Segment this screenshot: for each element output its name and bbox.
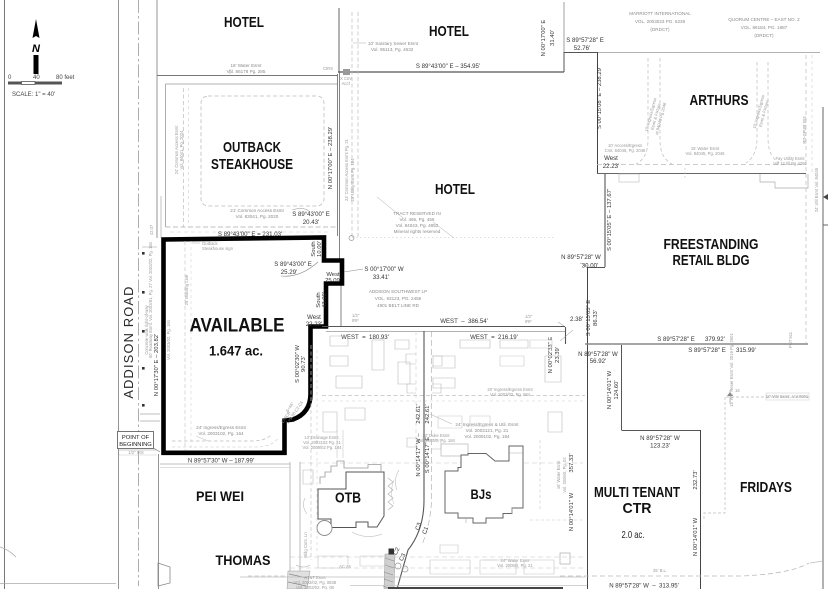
svg-text:S 89°57'28" E 379.92': S 89°57'28" E 379.92' bbox=[657, 336, 725, 343]
svg-text:PNT 911: PNT 911 bbox=[788, 331, 793, 348]
svg-text:56.92': 56.92' bbox=[590, 358, 606, 365]
svg-text:43.00': 43.00' bbox=[322, 292, 328, 308]
svg-text:Vol. 2003/0, Pg. 184: Vol. 2003/0, Pg. 184 bbox=[417, 438, 455, 443]
svg-text:(DRDCT): (DRDCT) bbox=[754, 33, 774, 38]
svg-text:MULTI TENANT: MULTI TENANT bbox=[594, 484, 680, 501]
svg-text:242.61': 242.61' bbox=[425, 404, 431, 423]
svg-text:2.0 ac.: 2.0 ac. bbox=[622, 529, 645, 541]
svg-text:N 00°14'17" W –: N 00°14'17" W – bbox=[416, 433, 422, 477]
svg-text:86.33': 86.33' bbox=[593, 310, 599, 326]
svg-text:25' Utility Esmt Pg. 184: 25' Utility Esmt Pg. 184 bbox=[350, 158, 355, 202]
svg-text:10' Sanitary Sewer Esmt: 10' Sanitary Sewer Esmt bbox=[368, 41, 419, 46]
svg-text:Vol. 2009/02 Pg. 184: Vol. 2009/02 Pg. 184 bbox=[303, 445, 343, 450]
svg-text:4901 BELT LINE RD: 4901 BELT LINE RD bbox=[377, 303, 420, 308]
svg-text:TRACT RESERVED IN: TRACT RESERVED IN bbox=[393, 211, 441, 216]
svg-text:80 feet: 80 feet bbox=[56, 75, 75, 81]
svg-text:BJs: BJs bbox=[471, 487, 492, 502]
svg-text:357.33': 357.33' bbox=[569, 453, 575, 472]
svg-text:FREESTANDING: FREESTANDING bbox=[664, 236, 759, 253]
svg-text:N 00°17'00" E – 238.29': N 00°17'00" E – 238.29' bbox=[328, 127, 334, 189]
svg-text:N 00°17'00" E: N 00°17'00" E bbox=[541, 20, 547, 57]
svg-text:Vol. 2003/02, Pg. 084: Vol. 2003/02, Pg. 084 bbox=[490, 392, 531, 397]
svg-text:(DRDCT): (DRDCT) bbox=[650, 27, 670, 32]
svg-text:N 00°17'30" E – 203.82': N 00°17'30" E – 203.82' bbox=[154, 334, 160, 396]
svg-text:QUORUM CENTRE – EAST NO. 2: QUORUM CENTRE – EAST NO. 2 bbox=[728, 17, 800, 22]
svg-text:16: 16 bbox=[735, 388, 740, 393]
svg-text:S 00°15'05" E – 137.67': S 00°15'05" E – 137.67' bbox=[607, 189, 613, 251]
svg-text:25.09': 25.09' bbox=[325, 278, 341, 284]
svg-text:Vol. 2003102, Pg. 164: Vol. 2003102, Pg. 164 bbox=[198, 431, 244, 436]
svg-text:Mineral rights reserved: Mineral rights reserved bbox=[394, 229, 441, 234]
svg-text:S 00°15'05" E: S 00°15'05" E bbox=[586, 300, 592, 336]
svg-text:HOTEL: HOTEL bbox=[224, 14, 264, 31]
svg-text:40: 40 bbox=[33, 75, 40, 81]
svg-text:Vol. 2009/0, Pg. 21: Vol. 2009/0, Pg. 21 bbox=[497, 563, 533, 568]
svg-text:N 00°14'01" W: N 00°14'01" W bbox=[569, 492, 575, 531]
svg-text:31.40': 31.40' bbox=[550, 30, 556, 46]
svg-text:24' Common Access Esmt Pg. 21: 24' Common Access Esmt Pg. 21 bbox=[344, 138, 349, 201]
svg-text:CIRS: CIRS bbox=[323, 66, 333, 71]
svg-text:52.76': 52.76' bbox=[574, 45, 590, 52]
svg-text:Vol. 2003121, Pg. 21: Vol. 2003121, Pg. 21 bbox=[466, 428, 509, 433]
svg-text:Vol. 2009102, Pg. 184: Vol. 2009102, Pg. 184 bbox=[464, 434, 510, 439]
svg-text:FRIDAYS: FRIDAYS bbox=[740, 479, 792, 496]
svg-text:123.23': 123.23' bbox=[650, 443, 670, 450]
svg-text:OUTBACK: OUTBACK bbox=[223, 139, 281, 156]
svg-text:Vol. 2003/02, Pg. 184: Vol. 2003/02, Pg. 184 bbox=[166, 319, 171, 360]
svg-text:BEGINNING: BEGINNING bbox=[119, 442, 152, 448]
svg-text:N 89°57'30" W – 187.99': N 89°57'30" W – 187.99' bbox=[188, 458, 254, 465]
svg-text:232.73': 232.73' bbox=[693, 470, 699, 489]
svg-text:20.43': 20.43' bbox=[303, 219, 319, 226]
svg-text:ARTHURS: ARTHURS bbox=[690, 92, 749, 109]
svg-text:IRF: IRF bbox=[525, 319, 532, 324]
svg-text:S 00°17'00" W: S 00°17'00" W bbox=[364, 266, 404, 273]
svg-text:Acc'l: Acc'l bbox=[342, 81, 351, 86]
svg-text:Vol. 2003/02, Pg. 08: Vol. 2003/02, Pg. 08 bbox=[296, 585, 334, 589]
svg-text:N 89°57'28" W: N 89°57'28" W bbox=[561, 254, 601, 261]
svg-text:CTR: CTR bbox=[623, 500, 652, 517]
svg-text:Cmt. 84045, Pg. 2046: Cmt. 84045, Pg. 2046 bbox=[605, 148, 646, 153]
svg-text:WEST – 386.54': WEST – 386.54' bbox=[440, 318, 488, 325]
svg-text:23.39': 23.39' bbox=[555, 347, 561, 363]
svg-text:VOL. 93123, PG. 2456: VOL. 93123, PG. 2456 bbox=[375, 296, 422, 301]
svg-text:OTB: OTB bbox=[335, 490, 361, 507]
svg-text:Vol. 95113, Pg. 4632: Vol. 95113, Pg. 4632 bbox=[371, 47, 414, 52]
svg-text:22.23': 22.23' bbox=[603, 163, 619, 170]
svg-text:2.38': 2.38' bbox=[570, 316, 583, 323]
svg-text:24' Util Esmt Vol. 84045: 24' Util Esmt Vol. 84045 bbox=[814, 167, 819, 212]
svg-text:HOTEL: HOTEL bbox=[429, 23, 469, 40]
svg-text:SCALE: 1" = 40': SCALE: 1" = 40' bbox=[12, 92, 55, 98]
svg-text:POINT OF: POINT OF bbox=[122, 435, 150, 441]
svg-text:15' Wtr. Reser Esmt Vol. 2019: 15' Wtr. Reser Esmt Vol. 2019 Pg. 2601 bbox=[729, 333, 734, 407]
svg-text:1/2" IRS: 1/2" IRS bbox=[128, 450, 144, 455]
svg-text:22.23': 22.23' bbox=[306, 321, 322, 328]
svg-text:24' Ingress/Egress Esmt: 24' Ingress/Egress Esmt bbox=[196, 425, 246, 430]
svg-text:Vol. 465, Pg. 456: Vol. 465, Pg. 456 bbox=[400, 217, 435, 222]
svg-text:10.00': 10.00' bbox=[317, 241, 323, 257]
svg-text:33.41': 33.41' bbox=[373, 274, 389, 281]
svg-text:16' Water Esmt: 16' Water Esmt bbox=[556, 460, 561, 489]
svg-text:30.00': 30.00' bbox=[582, 263, 598, 270]
svg-text:Vol 12 till Pg 4256: Vol 12 till Pg 4256 bbox=[773, 161, 807, 166]
svg-text:STEAKHOUSE: STEAKHOUSE bbox=[211, 156, 293, 173]
svg-text:Vol. 84043, Pg. 4853: Vol. 84043, Pg. 4853 bbox=[396, 223, 439, 228]
svg-text:18' Water Esmt: 18' Water Esmt bbox=[230, 63, 262, 68]
svg-text:N 89°57'28" W: N 89°57'28" W bbox=[578, 351, 618, 358]
svg-text:West: West bbox=[307, 314, 321, 321]
svg-text:S 89°43'00" E – 354.95': S 89°43'00" E – 354.95' bbox=[416, 63, 480, 70]
svg-text:N 00°14'01" W: N 00°14'01" W bbox=[693, 517, 699, 556]
svg-text:S 89°57'28" E 315.99': S 89°57'28" E 315.99' bbox=[688, 347, 756, 354]
svg-text:Steakhouse sign: Steakhouse sign bbox=[202, 246, 234, 251]
svg-text:VOL. 2003023 PG. 5236: VOL. 2003023 PG. 5236 bbox=[635, 19, 686, 24]
svg-text:THOMAS: THOMAS bbox=[216, 552, 271, 568]
svg-text:Vol. 84045, Pg. 2046: Vol. 84045, Pg. 2046 bbox=[686, 151, 726, 156]
svg-text:42.07: 42.07 bbox=[149, 224, 154, 235]
svg-text:90.73': 90.73' bbox=[301, 356, 307, 372]
svg-text:HOTEL: HOTEL bbox=[435, 181, 475, 198]
svg-text:Vol. 86178 Pg. 285: Vol. 86178 Pg. 285 bbox=[227, 69, 266, 74]
svg-text:124.60': 124.60' bbox=[614, 380, 620, 399]
svg-text:Vol. 2009/0, Pg. 02: Vol. 2009/0, Pg. 02 bbox=[562, 457, 567, 493]
svg-text:MARRIOTT INTERNATIONAL: MARRIOTT INTERNATIONAL bbox=[629, 11, 691, 16]
svg-text:N 00°14'01" W: N 00°14'01" W bbox=[607, 370, 613, 409]
svg-text:IRF: IRF bbox=[352, 318, 359, 323]
svg-text:West: West bbox=[604, 155, 618, 162]
svg-text:Vol. 83041, Pg. 2020: Vol. 83041, Pg. 2020 bbox=[236, 214, 279, 219]
svg-text:242.61': 242.61' bbox=[416, 404, 422, 423]
svg-text:21' Common Access Esmt: 21' Common Access Esmt bbox=[230, 208, 284, 213]
svg-text:N: N bbox=[32, 43, 41, 55]
svg-text:N 89°57'28" W: N 89°57'28" W bbox=[640, 435, 680, 442]
svg-text:60' Roadway Esmt. Vol. 2002/8: 60' Roadway Esmt. Vol. 2002/81, Pg. 27 V… bbox=[148, 241, 153, 358]
svg-text:S 00°14'17" E: S 00°14'17" E bbox=[425, 437, 431, 473]
svg-text:N 89°57'28" W – 313.95': N 89°57'28" W – 313.95' bbox=[609, 583, 679, 589]
svg-text:25' B.L.: 25' B.L. bbox=[653, 568, 667, 573]
svg-text:PEI WEI: PEI WEI bbox=[196, 488, 244, 504]
svg-text:S 89°43'00" E: S 89°43'00" E bbox=[274, 261, 312, 268]
svg-text:Vol. 84041, Pg. 2024: Vol. 84041, Pg. 2024 bbox=[179, 130, 184, 170]
svg-text:N 00°02'33" E: N 00°02'33" E bbox=[548, 337, 554, 374]
svg-text:10' Wtr Esmt, Vol 9091: 10' Wtr Esmt, Vol 9091 bbox=[766, 394, 809, 399]
svg-text:S 89°57'28" E: S 89°57'28" E bbox=[566, 37, 604, 44]
svg-text:S 00°15'08" E – 238.29': S 00°15'08" E – 238.29' bbox=[597, 67, 603, 129]
svg-text:RETAIL BLDG: RETAIL BLDG bbox=[673, 252, 750, 269]
svg-text:25' Building Line: 25' Building Line bbox=[184, 274, 189, 305]
svg-text:ADDISON SOUTHWEST LP: ADDISON SOUTHWEST LP bbox=[369, 289, 427, 294]
svg-text:1.647 ac.: 1.647 ac. bbox=[209, 343, 263, 359]
svg-text:Bldg Cont. Ln: Bldg Cont. Ln bbox=[303, 532, 308, 558]
svg-text:ADDISON ROAD: ADDISON ROAD bbox=[121, 285, 136, 398]
svg-text:S 89°43'00" E: S 89°43'00" E bbox=[292, 211, 330, 218]
svg-text:AVAILABLE: AVAILABLE bbox=[190, 316, 285, 337]
svg-text:VOL. 86184, PG. 1887: VOL. 86184, PG. 1887 bbox=[741, 25, 788, 30]
